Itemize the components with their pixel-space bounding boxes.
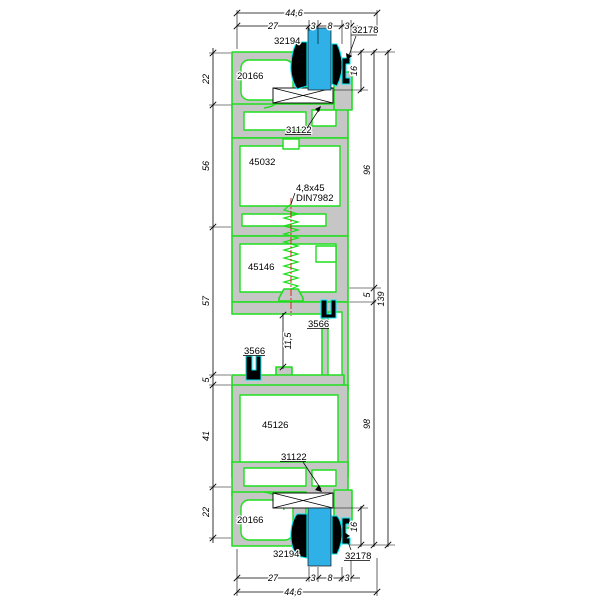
dim-top-27: 27 [267, 21, 279, 31]
dim-right-16b: 16 [349, 522, 359, 532]
dim-left-41: 41 [201, 431, 211, 441]
label-frame-bottom: 20166 [237, 515, 263, 526]
cad-canvas: 44,6 27 3 8 3 22 56 57 5 41 22 16 96 5 9… [0, 0, 600, 600]
dim-top-3a: 3 [310, 21, 315, 31]
dim-left-56: 56 [201, 161, 211, 171]
dim-bottom-8: 8 [327, 573, 332, 583]
dim-bottom-total: 44,6 [284, 587, 302, 597]
label-mid: 45146 [248, 262, 274, 273]
label-gasket-top: 32194 [274, 36, 300, 47]
dim-bottom-27: 27 [267, 573, 279, 583]
dim-left-22a: 22 [201, 74, 211, 85]
label-sash-bottom: 45126 [262, 420, 288, 431]
label-screw-din: DIN7982 [296, 193, 334, 204]
dim-bottom-3a: 3 [310, 573, 315, 583]
witness-left [209, 53, 231, 538]
label-sash-top: 45032 [249, 157, 275, 168]
mid-step-chamber [316, 246, 336, 262]
dim-top-3b: 3 [344, 21, 349, 31]
screw-port [283, 139, 299, 149]
gasket-bottom-right [332, 516, 342, 554]
dim-right-98: 98 [362, 419, 372, 429]
frame-bottom-slot-right [312, 470, 336, 486]
glass-pane-top [308, 28, 331, 90]
label-gasket-bottom: 32194 [273, 549, 299, 560]
dim-left-5: 5 [201, 377, 211, 383]
clip-mid-left [246, 356, 261, 380]
dim-top-8: 8 [327, 21, 332, 31]
dim-bottom-3b: 3 [344, 573, 349, 583]
label-clip-top: 32178 [352, 25, 378, 36]
dim-mid-115: 11,5 [283, 332, 293, 350]
junction-slot [242, 214, 326, 226]
dim-right-96: 96 [362, 165, 372, 175]
label-frame-top: 20166 [237, 71, 263, 82]
right-column-chamber [328, 312, 342, 378]
frame-top-slot-right [312, 110, 336, 126]
dim-left-22b: 22 [201, 507, 211, 518]
dim-left-57: 57 [201, 295, 211, 306]
dim-top-total: 44,6 [285, 8, 303, 18]
dim-right-139: 139 [376, 291, 386, 306]
dim-right-5: 5 [362, 292, 372, 298]
technical-drawing: 44,6 27 3 8 3 22 56 57 5 41 22 16 96 5 9… [0, 0, 600, 600]
frame-bottom-slot-left [244, 468, 306, 486]
gasket-top-left [291, 42, 307, 89]
dim-right-16a: 16 [349, 66, 359, 76]
glass-pane-bottom [308, 508, 331, 566]
